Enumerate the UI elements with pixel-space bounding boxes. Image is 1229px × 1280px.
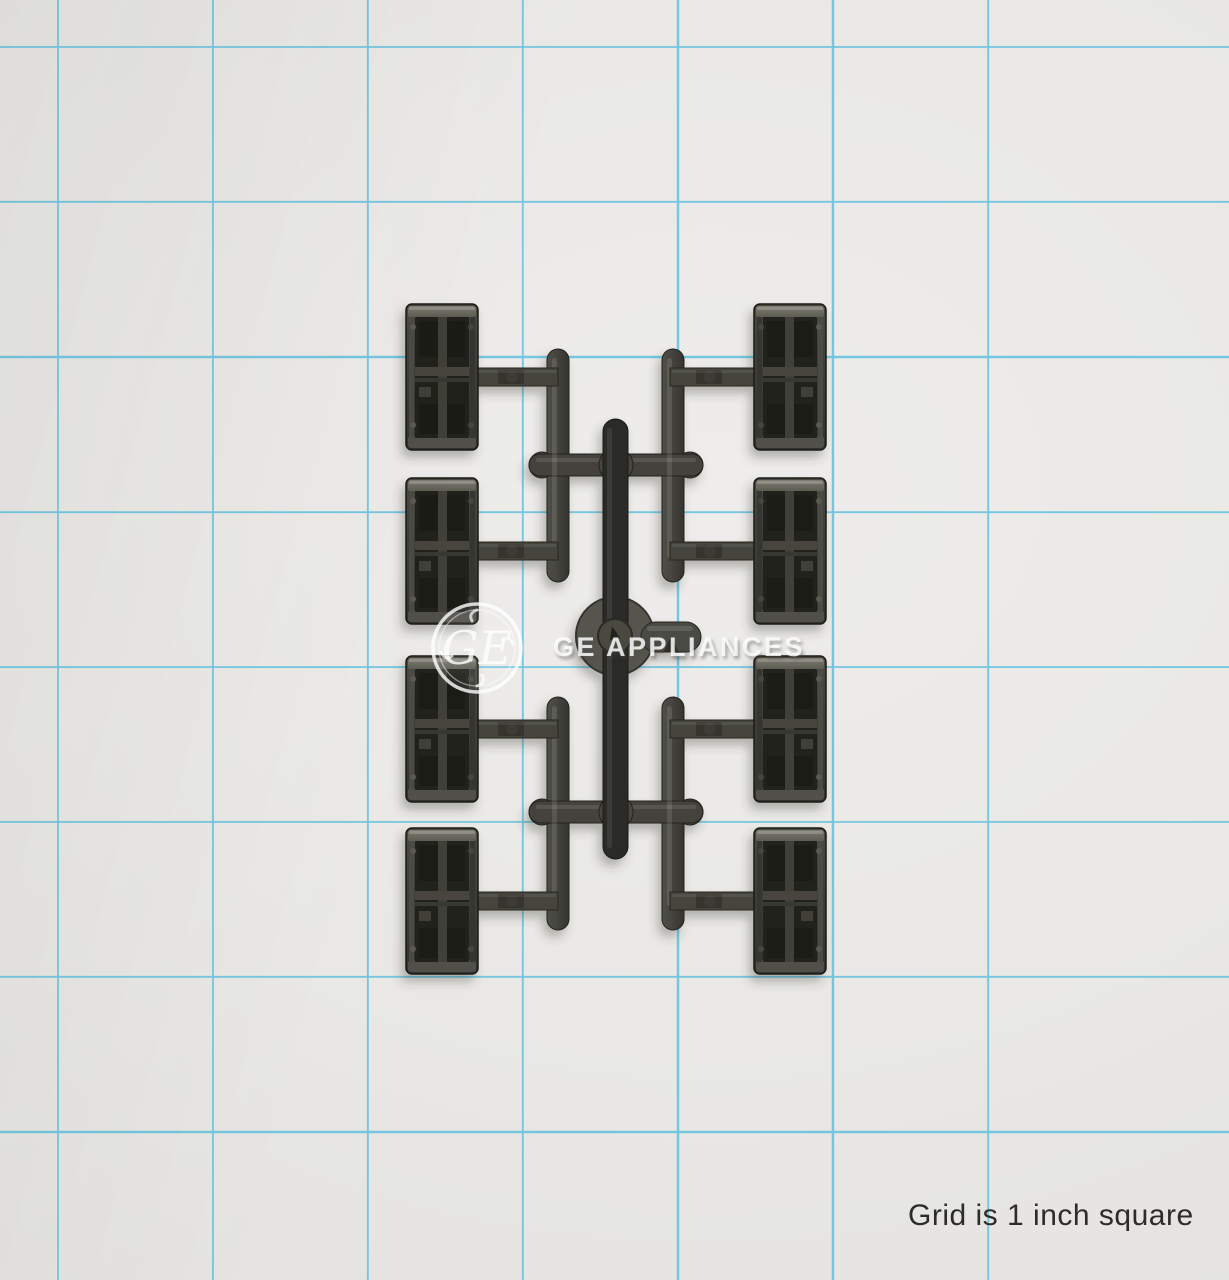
tab-right-4 — [670, 892, 756, 910]
part-sprue — [0, 0, 1229, 1280]
tab-right-1 — [670, 368, 756, 386]
clip-part-2 — [406, 478, 478, 624]
clip-part-3 — [406, 656, 478, 802]
tab-left-1 — [472, 368, 558, 386]
tab-right-2 — [670, 542, 756, 560]
clip-part-6 — [754, 478, 826, 624]
clip-part-8 — [754, 828, 826, 974]
sprue-runner — [529, 349, 703, 930]
tab-left-3 — [472, 720, 558, 738]
tab-left-4 — [472, 892, 558, 910]
grid-caption: Grid is 1 inch square — [908, 1199, 1194, 1233]
tab-left-2 — [472, 542, 558, 560]
clip-part-1 — [406, 304, 478, 450]
clip-part-7 — [754, 656, 826, 802]
tab-right-3 — [670, 720, 756, 738]
product-photo: GE GE APPLIANCES Grid is 1 inch square — [0, 0, 1229, 1280]
clip-part-4 — [406, 828, 478, 974]
clip-part-5 — [754, 304, 826, 450]
